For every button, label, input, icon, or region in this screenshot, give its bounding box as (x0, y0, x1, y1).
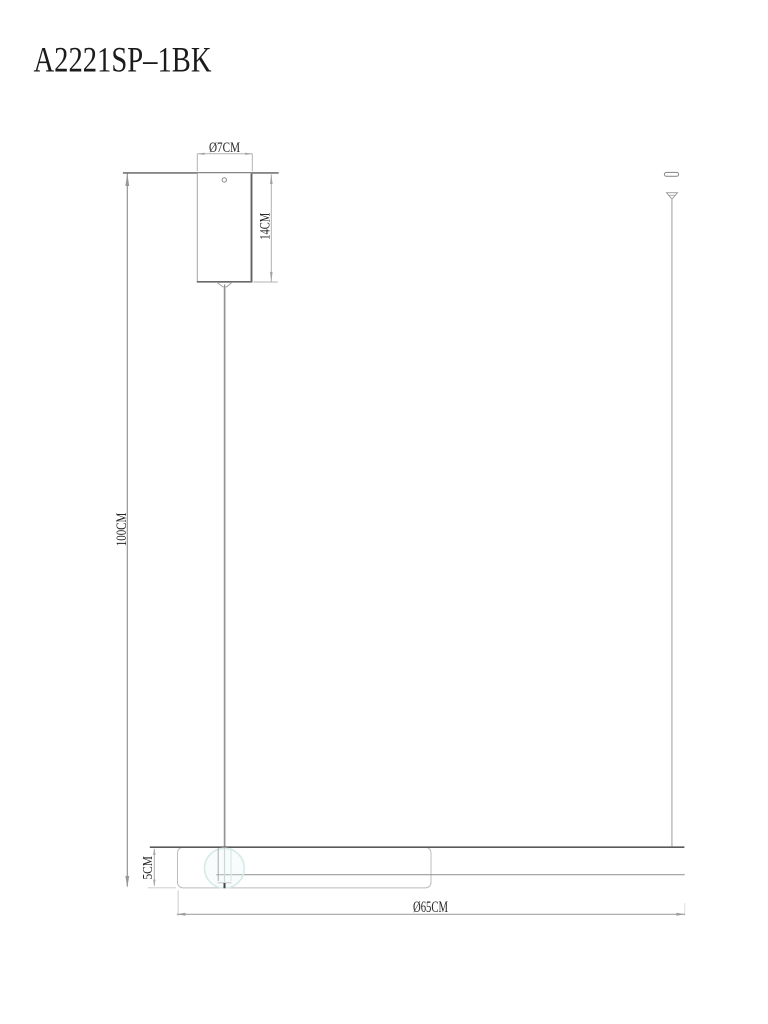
svg-text:14CM: 14CM (257, 213, 273, 240)
svg-text:Ø65CM: Ø65CM (413, 899, 448, 916)
svg-text:100CM: 100CM (114, 513, 130, 547)
svg-text:A2221SP–1BK: A2221SP–1BK (34, 40, 212, 80)
svg-text:5CM: 5CM (141, 856, 156, 880)
